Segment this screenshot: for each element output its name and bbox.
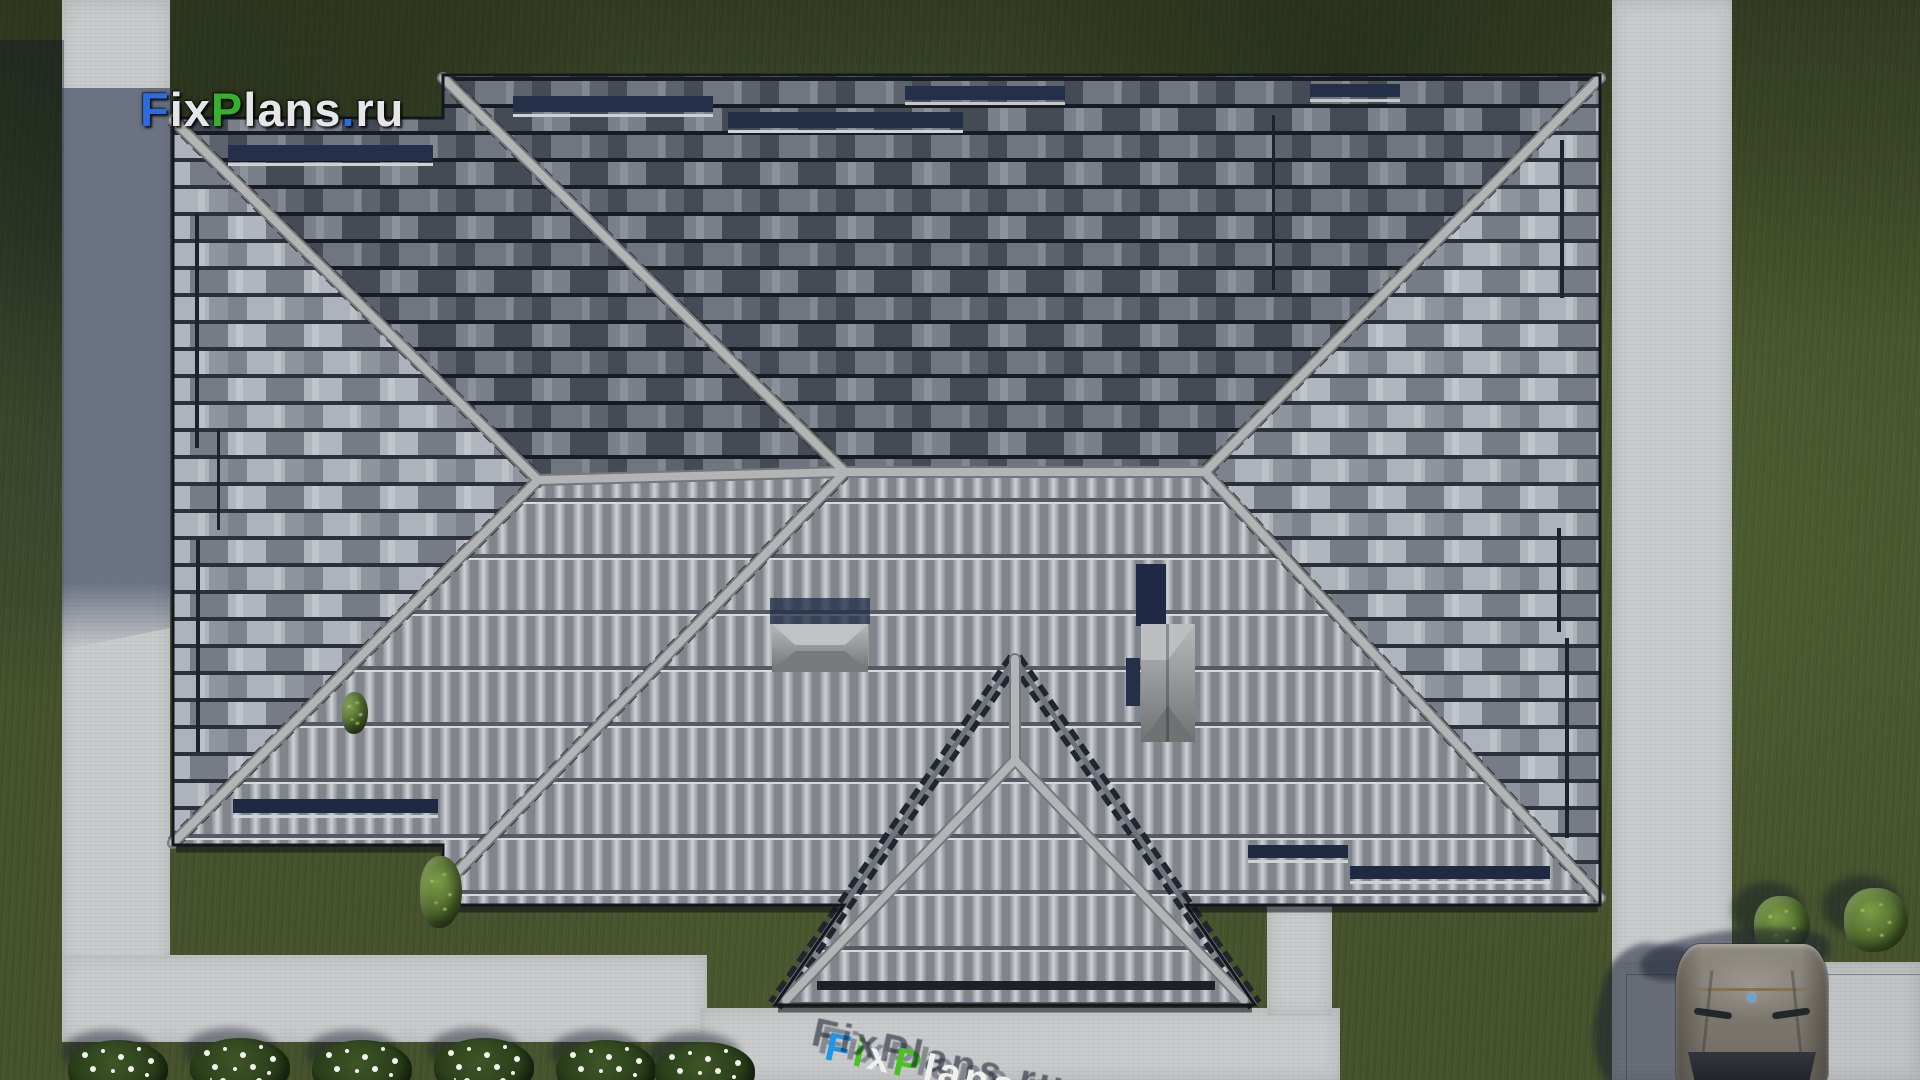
text-part: ix: [170, 83, 211, 136]
car: [1676, 944, 1828, 1080]
text-part: lans: [243, 83, 341, 136]
flowers: [326, 1052, 332, 1058]
text-part: ru: [355, 83, 404, 136]
text-part: .: [341, 83, 355, 136]
flowers: [82, 1052, 88, 1058]
car-roof-sensor: [1748, 994, 1755, 1001]
aerial-roof-render: FixPlans.ru FixPlans.ru: [0, 0, 1920, 1080]
flowers: [448, 1050, 454, 1056]
watermark-logo: FixPlans.ru: [140, 86, 404, 133]
car-hood-vent: [1694, 1007, 1733, 1019]
flowers: [669, 1054, 675, 1060]
flowers: [204, 1050, 210, 1056]
roof-skylight: [770, 598, 870, 672]
flowers: [570, 1052, 576, 1058]
porch-eave-shadow: [817, 981, 1215, 990]
text-part: P: [211, 83, 243, 136]
car-windshield: [1688, 1052, 1816, 1080]
roof-faces: [173, 75, 1600, 1005]
car-bumper-seam: [1686, 988, 1818, 991]
text-part: F: [140, 83, 170, 136]
roof: [0, 0, 1920, 1080]
car-hood-vent: [1772, 1007, 1811, 1019]
